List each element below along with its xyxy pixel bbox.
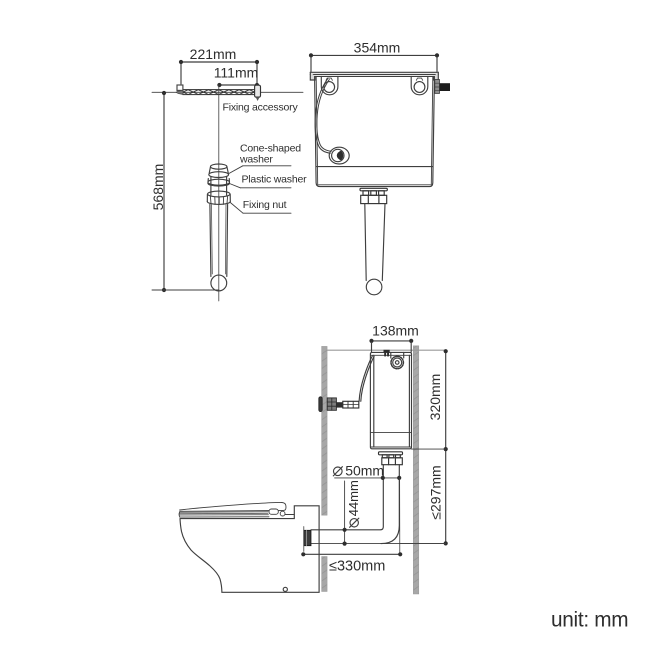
svg-text:Fixing accessory: Fixing accessory bbox=[223, 101, 299, 113]
svg-text:44mm: 44mm bbox=[346, 480, 361, 516]
svg-text:221mm: 221mm bbox=[190, 46, 237, 62]
svg-text:320mm: 320mm bbox=[427, 374, 443, 421]
svg-text:Fixing nut: Fixing nut bbox=[243, 199, 287, 211]
svg-text:Cone-shaped: Cone-shaped bbox=[240, 142, 301, 154]
svg-text:111mm: 111mm bbox=[214, 65, 259, 81]
svg-text:50mm: 50mm bbox=[345, 463, 384, 479]
svg-text:≤330mm: ≤330mm bbox=[329, 559, 385, 575]
svg-text:washer: washer bbox=[239, 154, 273, 166]
svg-text:568mm: 568mm bbox=[150, 164, 166, 211]
svg-text:unit: mm: unit: mm bbox=[551, 609, 628, 632]
svg-text:≤297mm: ≤297mm bbox=[428, 465, 444, 519]
svg-text:354mm: 354mm bbox=[354, 40, 401, 56]
svg-text:Plastic washer: Plastic washer bbox=[242, 174, 308, 186]
svg-text:138mm: 138mm bbox=[372, 323, 419, 339]
